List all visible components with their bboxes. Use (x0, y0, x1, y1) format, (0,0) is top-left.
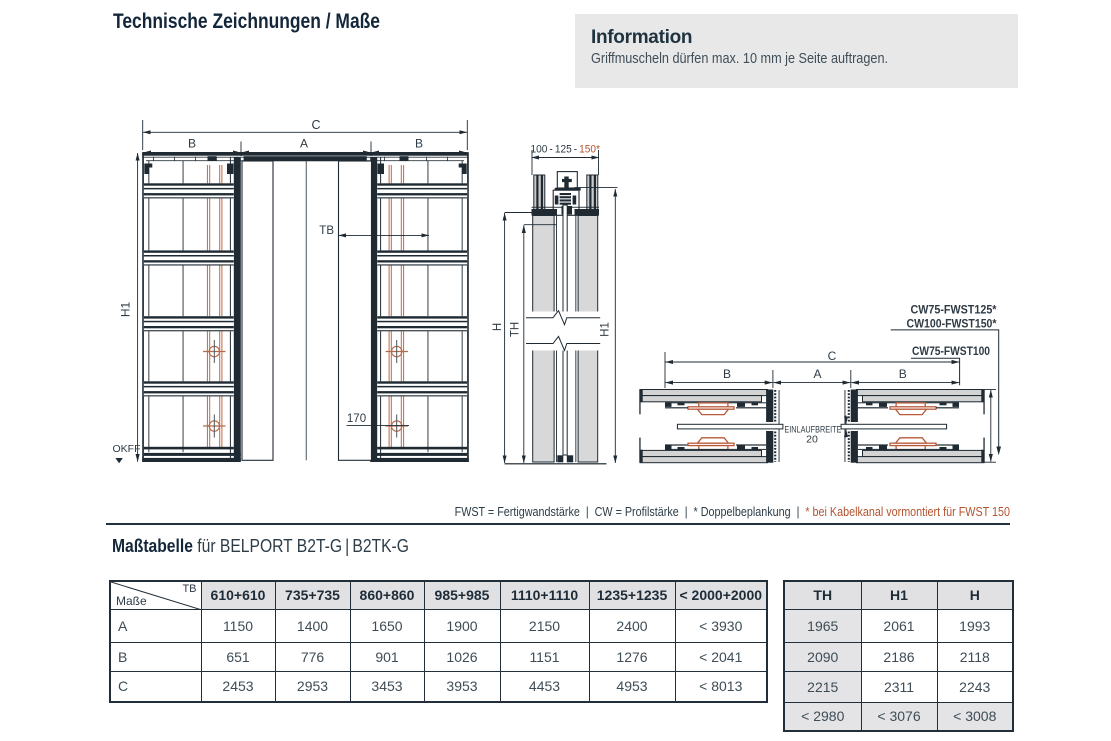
svg-text:H1: H1 (600, 322, 612, 337)
svg-text:B: B (415, 137, 423, 151)
svg-text:100 - 125 - 150*: 100 - 125 - 150* (531, 144, 601, 156)
svg-text:C: C (311, 118, 320, 132)
svg-text:A: A (300, 137, 308, 151)
svg-text:TB: TB (319, 225, 334, 237)
svg-text:A: A (813, 367, 821, 381)
svg-text:170: 170 (347, 413, 366, 425)
svg-text:CW75-FWST125*: CW75-FWST125* (911, 303, 997, 317)
svg-text:CW75-FWST100: CW75-FWST100 (912, 344, 990, 358)
svg-text:C: C (828, 349, 837, 363)
svg-text:H1: H1 (119, 302, 133, 318)
svg-text:CW100-FWST150*: CW100-FWST150* (907, 317, 997, 331)
svg-text:H: H (492, 323, 504, 331)
svg-text:B: B (899, 367, 907, 381)
svg-text:B: B (723, 367, 731, 381)
svg-text:20: 20 (806, 434, 818, 446)
svg-text:B: B (188, 137, 196, 151)
svg-text:TH: TH (510, 322, 522, 337)
svg-text:OKFF: OKFF (113, 443, 141, 455)
